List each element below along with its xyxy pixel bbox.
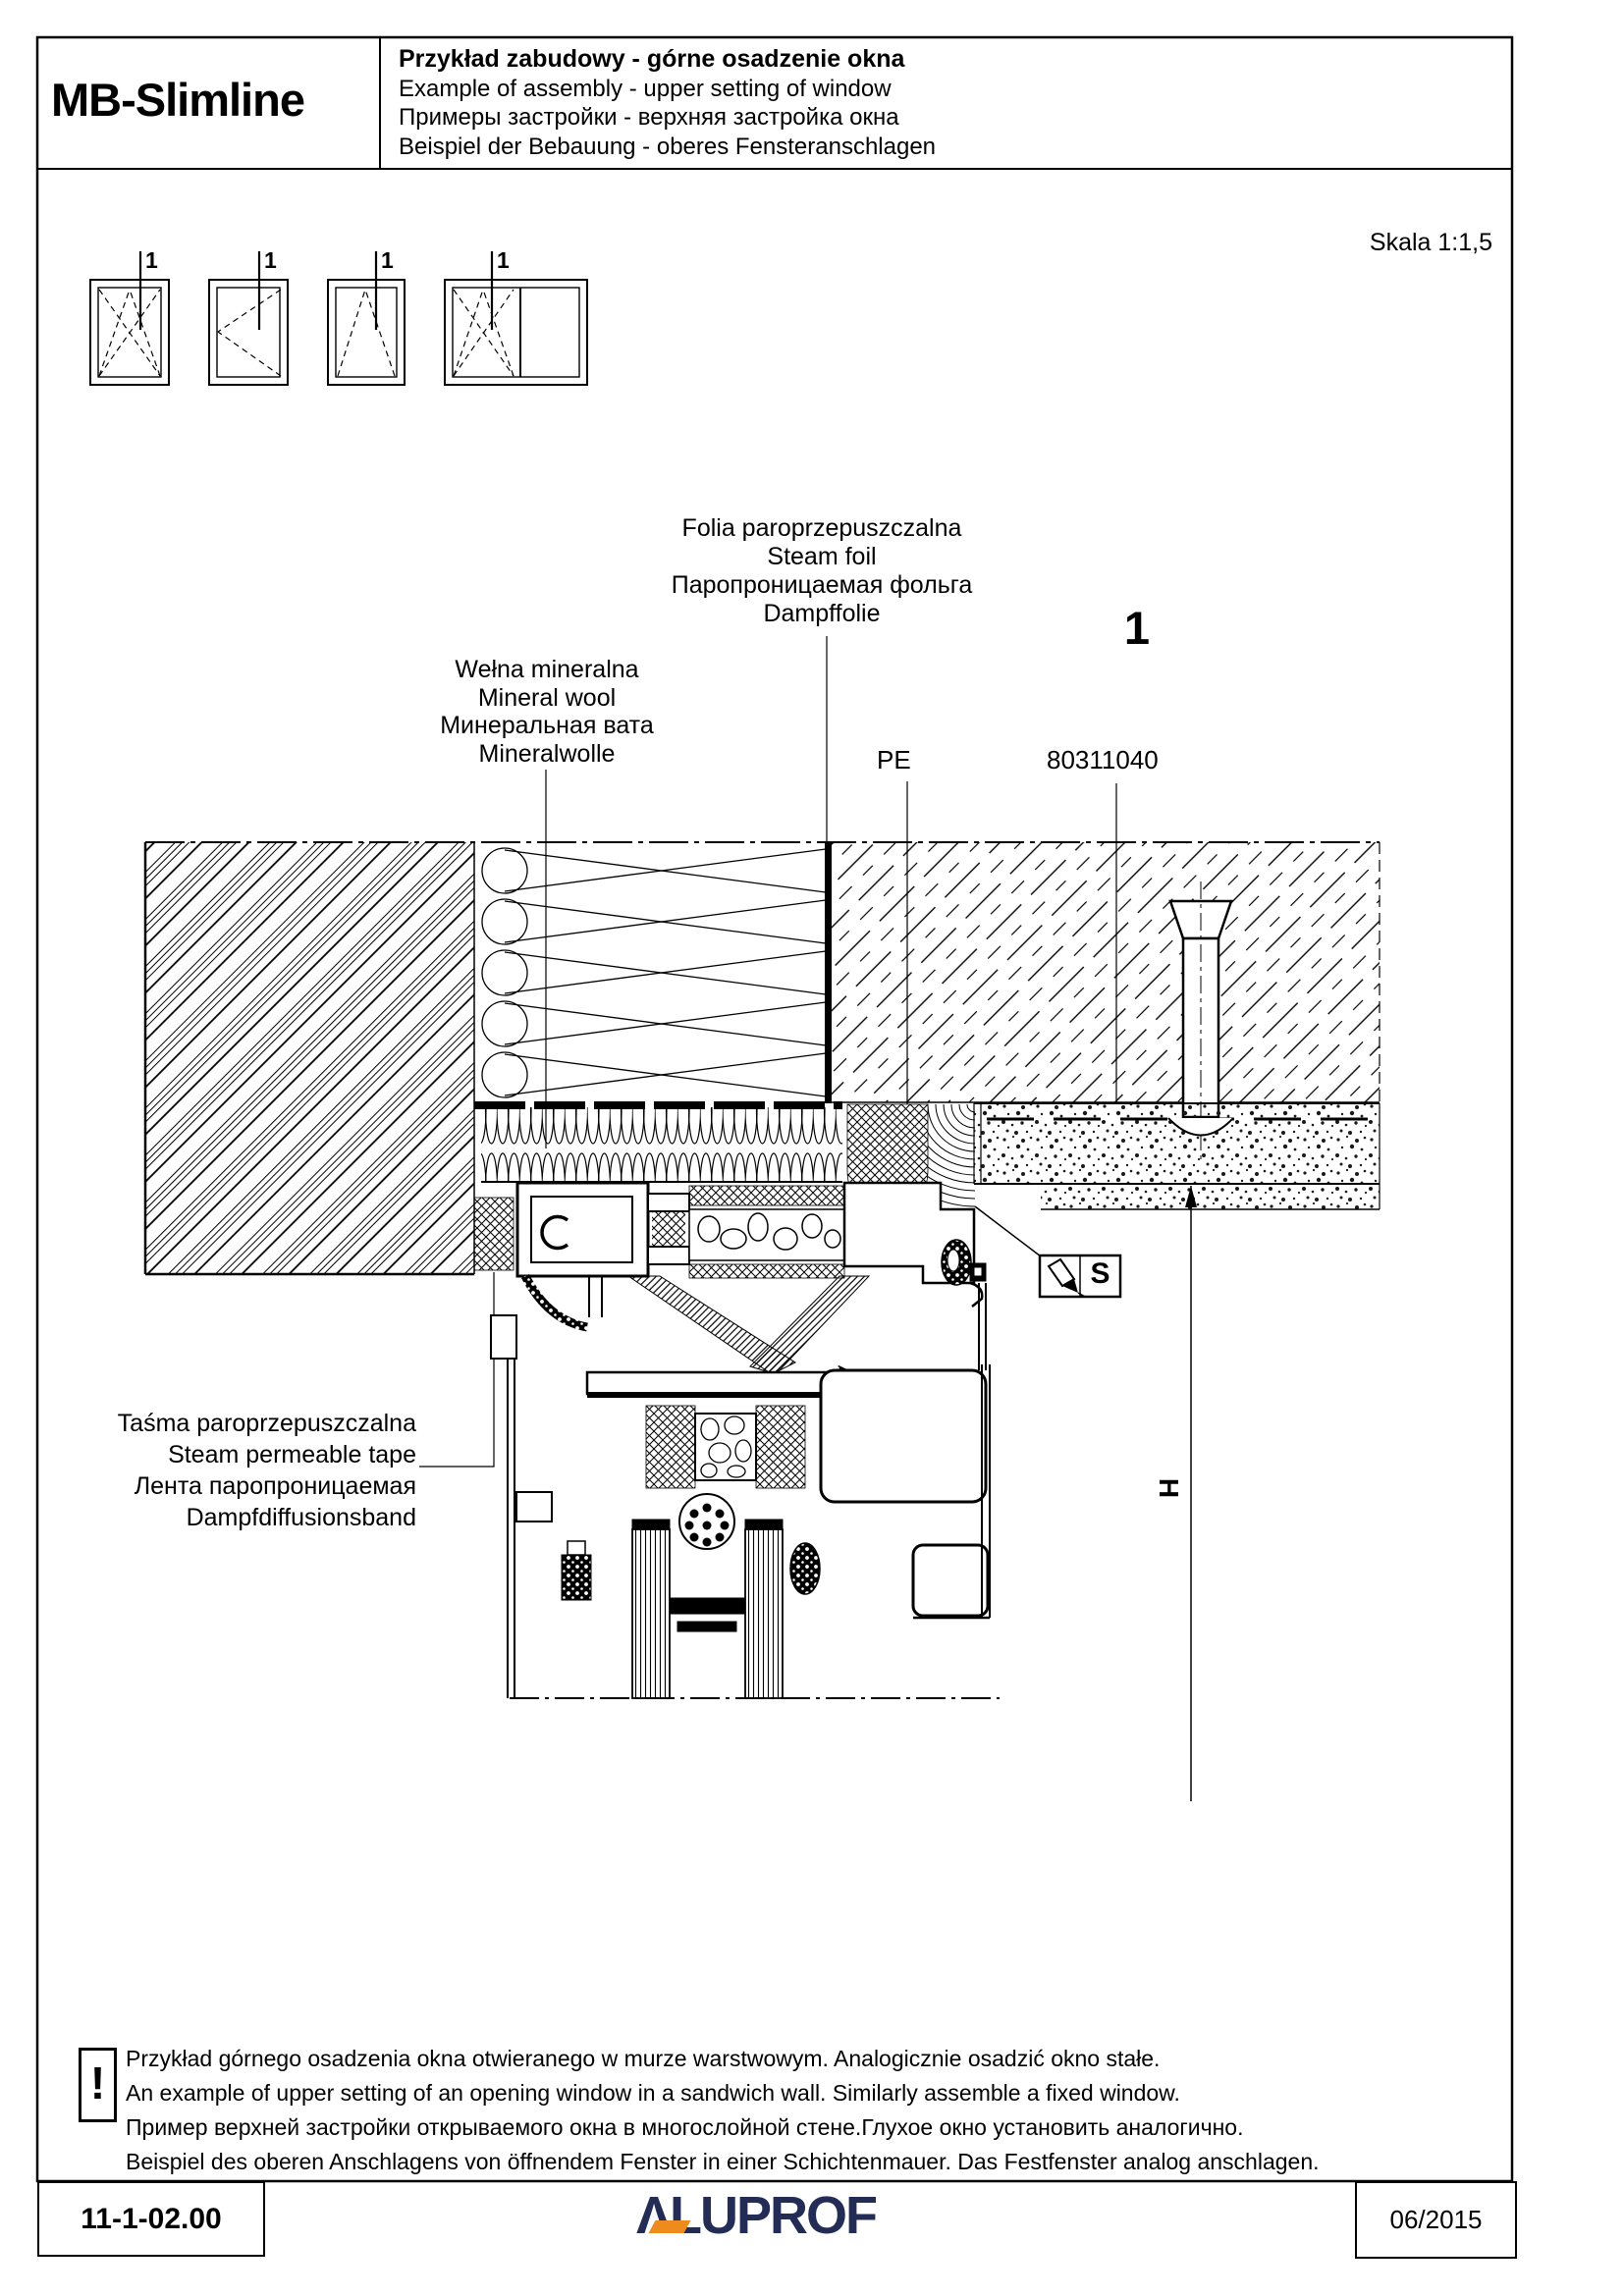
height-symbol-label: H xyxy=(1159,1472,1202,1516)
note-line-en: An example of upper setting of an openin… xyxy=(126,2076,1320,2110)
detail-number: 1 xyxy=(1108,601,1166,655)
catalog-page: MB-Slimline Przykład zabudowy - górne os… xyxy=(0,0,1624,2296)
part-number-label: 80311040 xyxy=(1047,746,1159,774)
outer-wall-leaf xyxy=(832,842,1380,1102)
scale-label: Skala 1:1,5 xyxy=(1296,229,1492,257)
note-line-ru: Пример верхней застройки открываемого ок… xyxy=(126,2110,1320,2145)
mineral-wool-strip xyxy=(481,1107,842,1182)
aluprof-logo-flag-icon xyxy=(649,2220,691,2233)
symbol-tilt-turn-window xyxy=(90,280,169,385)
date-label: 06/2015 xyxy=(1390,2205,1483,2235)
document-number-box: 11-1-02.00 xyxy=(37,2181,265,2257)
document-number: 11-1-02.00 xyxy=(81,2203,221,2236)
symbol-tilt-turn-fixed-window xyxy=(445,280,587,385)
section-marker-4: 1 xyxy=(497,247,522,274)
mineral-wool-label: Wełna mineralna Mineral wool Минеральная… xyxy=(370,656,724,768)
title-de: Beispiel der Bebauung - oberes Fensteran… xyxy=(399,133,936,162)
product-name: MB-Slimline xyxy=(51,73,304,127)
steam-foil-label: Folia paroprzepuszczalna Steam foil Паро… xyxy=(625,514,1018,628)
note-text: Przykład górnego osadzenia okna otwieran… xyxy=(126,2042,1320,2179)
note-line-de: Beispiel des oberen Anschlagens von öffn… xyxy=(126,2145,1320,2179)
window-sash-profile xyxy=(491,1276,1000,1698)
concrete-lintel xyxy=(974,1103,1380,1209)
masonry-wall xyxy=(145,842,474,1274)
aluprof-logo: ΛLUPROF xyxy=(636,2181,931,2254)
section-marker-2: 1 xyxy=(264,247,290,274)
section-cut-lines xyxy=(140,251,492,330)
note-line-pl: Przykład górnego osadzenia okna otwieran… xyxy=(126,2042,1320,2076)
title-ru: Примеры застройки - верхняя застройка ок… xyxy=(399,103,936,133)
pe-label: PE xyxy=(877,746,911,774)
aluprof-logo-text: ΛLUPROF xyxy=(636,2186,876,2245)
steam-tape-label: Taśma paroprzepuszczalna Steam permeable… xyxy=(96,1408,416,1533)
steam-tape-column xyxy=(474,1198,514,1270)
symbol-turn-window xyxy=(209,280,288,385)
technical-drawing xyxy=(0,0,1624,2296)
title-pl: Przykład zabudowy - górne osadzenie okna xyxy=(399,45,936,75)
symbol-tilt-window xyxy=(328,280,405,385)
title-block: Przykład zabudowy - górne osadzenie okna… xyxy=(399,45,936,161)
date-box: 06/2015 xyxy=(1355,2181,1517,2259)
section-marker-1: 1 xyxy=(145,247,171,274)
title-en: Example of assembly - upper setting of w… xyxy=(399,75,936,104)
mineral-wool-cavity xyxy=(482,848,826,1097)
section-marker-3: 1 xyxy=(381,247,406,274)
warning-icon: ! xyxy=(79,2048,117,2122)
seal-symbol-label: S xyxy=(1080,1257,1120,1291)
